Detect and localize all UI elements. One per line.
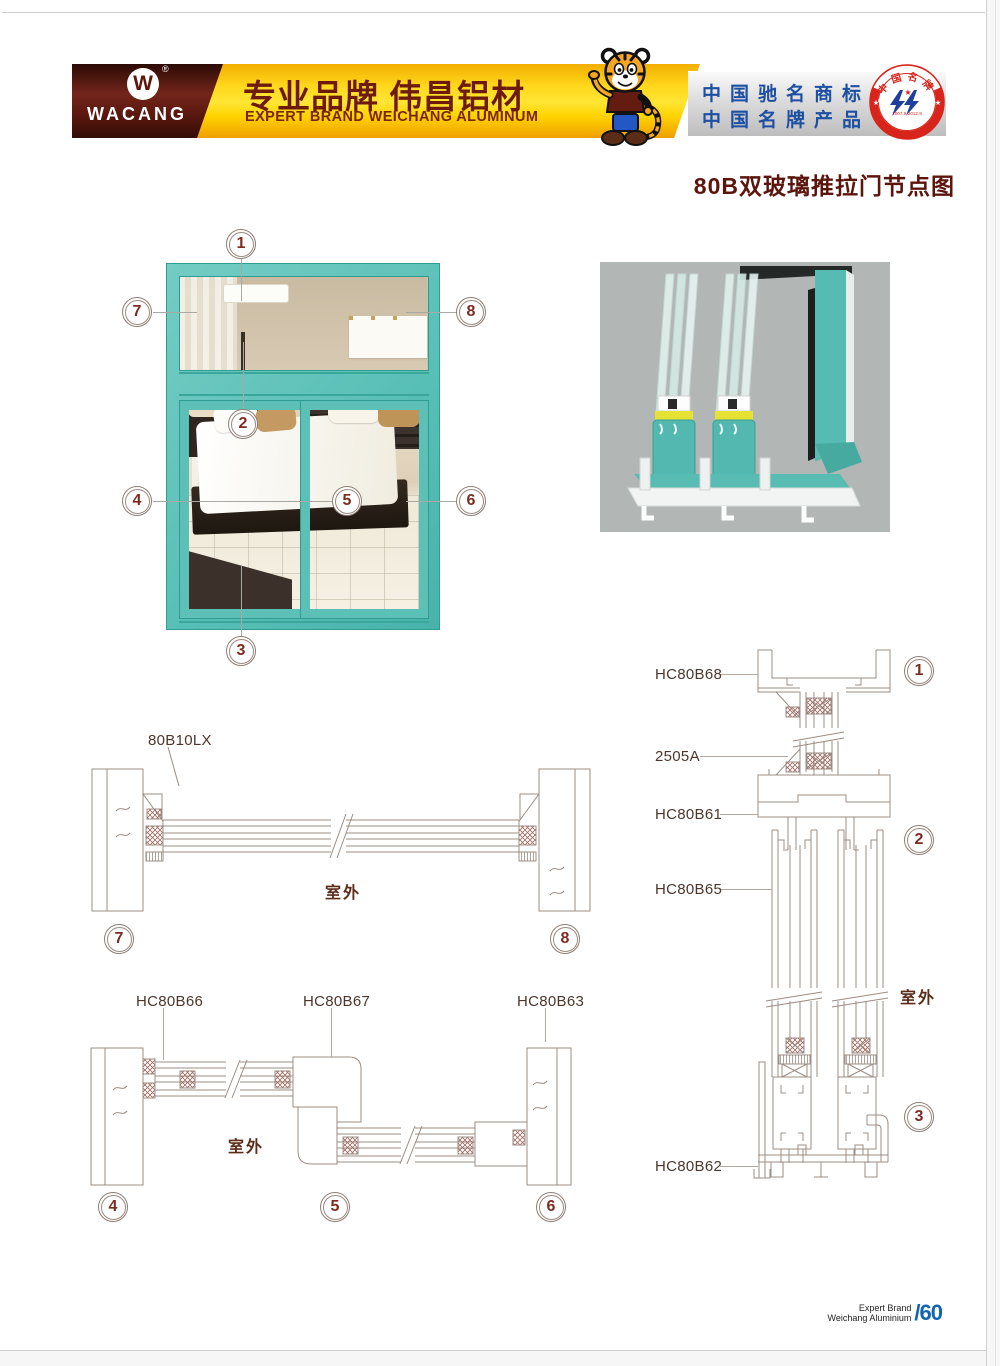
profile-label-HC80B65: HC80B65: [655, 881, 722, 898]
leader-line: [700, 756, 788, 757]
profile-label-2505A: 2505A: [655, 748, 700, 765]
callout-5-section: 5: [320, 1192, 350, 1222]
page-edge-top: [2, 12, 985, 13]
callout-1-section: 1: [904, 656, 934, 686]
svg-text:★: ★: [904, 88, 911, 97]
honor-line-2: 中国名牌产品: [702, 105, 870, 132]
leader-line: [241, 566, 242, 636]
page-title: 80B双玻璃推拉门节点图: [694, 167, 955, 201]
outdoor-label-b: 室外: [228, 1133, 264, 1157]
leader-line: [720, 814, 758, 815]
page-edge-right-2: [995, 0, 996, 1366]
profile-label-HC80B61: HC80B61: [655, 806, 722, 823]
outdoor-label-a: 室外: [325, 879, 361, 903]
china-top-brand-badge: 中国名牌 CHINA TOP BRAND ★ ★ ★ 2007.9-2012.9: [869, 64, 945, 140]
footer-brand-line1: Expert Brand: [828, 1303, 912, 1313]
page-edge-right: [986, 0, 1000, 1366]
callout-2-section: 2: [904, 825, 934, 855]
footer-brand: Expert Brand Weichang Aluminium: [828, 1303, 912, 1323]
bedroom-photo: [301, 401, 428, 609]
leader-line: [331, 1008, 332, 1057]
page-number: /60: [914, 1300, 942, 1326]
leader-line: [406, 312, 456, 313]
leader-line: [153, 312, 197, 313]
right-sash-glass: [301, 401, 428, 618]
callout-7: 7: [122, 297, 152, 327]
profile-label-HC80B63: HC80B63: [517, 993, 584, 1010]
callout-6: 6: [456, 486, 486, 516]
profile-label-HC80B68: HC80B68: [655, 666, 722, 683]
profile-label-HC80B62: HC80B62: [655, 1158, 722, 1175]
leader-line: [406, 501, 456, 502]
registered-mark: ®: [162, 64, 169, 74]
logo-wordmark: WACANG: [72, 104, 202, 125]
callout-7-section: 7: [104, 924, 134, 954]
leader-line: [720, 889, 772, 890]
bedroom-photo: [179, 276, 427, 371]
transom-glass: [179, 276, 429, 371]
honor-line-1: 中国驰名商标: [702, 79, 870, 106]
wacang-logo-icon: W: [127, 68, 159, 100]
callout-4-section: 4: [98, 1192, 128, 1222]
svg-text:★: ★: [873, 99, 879, 107]
callout-2: 2: [228, 409, 258, 439]
callout-3-section: 3: [904, 1102, 934, 1132]
profile-3d-render: [600, 262, 890, 532]
callout-8: 8: [456, 297, 486, 327]
profile-label-HC80B66: HC80B66: [136, 993, 203, 1010]
frame-groove: [179, 372, 429, 374]
leader-line: [153, 501, 332, 502]
callout-1: 1: [226, 229, 256, 259]
photo-shape: [349, 316, 427, 358]
frame-groove: [179, 394, 429, 396]
logo-block: W ® WACANG: [72, 64, 223, 138]
profile-label-HC80B67: HC80B67: [303, 993, 370, 1010]
leader-line: [720, 674, 758, 675]
callout-6-section: 6: [536, 1192, 566, 1222]
callout-3: 3: [226, 636, 256, 666]
callout-8-section: 8: [550, 924, 580, 954]
svg-text:★: ★: [935, 99, 941, 107]
leader-line: [163, 1008, 164, 1060]
frame-groove: [179, 621, 429, 623]
profile-label-80B10LX: 80B10LX: [148, 732, 212, 749]
footer: Expert Brand Weichang Aluminium /60: [700, 1300, 942, 1326]
cross-section-drawing-4-5-6: [85, 1035, 660, 1235]
photo-shape: [223, 284, 289, 303]
callout-4: 4: [122, 486, 152, 516]
svg-text:2007.9-2012.9: 2007.9-2012.9: [892, 111, 922, 116]
leader-line: [545, 1008, 546, 1042]
leader-line: [243, 342, 244, 410]
sliding-door-frame: [166, 263, 440, 630]
banner-subtitle-en: EXPERT BRAND WEICHANG ALUMINUM: [245, 109, 605, 125]
catalog-page: W ® WACANG 专业品牌 伟昌铝材 EXPERT BRAND WEICHA…: [0, 0, 1000, 1366]
footer-brand-line2: Weichang Aluminium: [828, 1313, 912, 1323]
leader-line: [241, 259, 242, 301]
callout-5: 5: [332, 486, 362, 516]
tiger-mascot: [583, 44, 671, 148]
page-edge-bottom: [0, 1350, 986, 1366]
leader-line: [720, 1166, 758, 1167]
outdoor-label-c: 室外: [900, 984, 936, 1008]
